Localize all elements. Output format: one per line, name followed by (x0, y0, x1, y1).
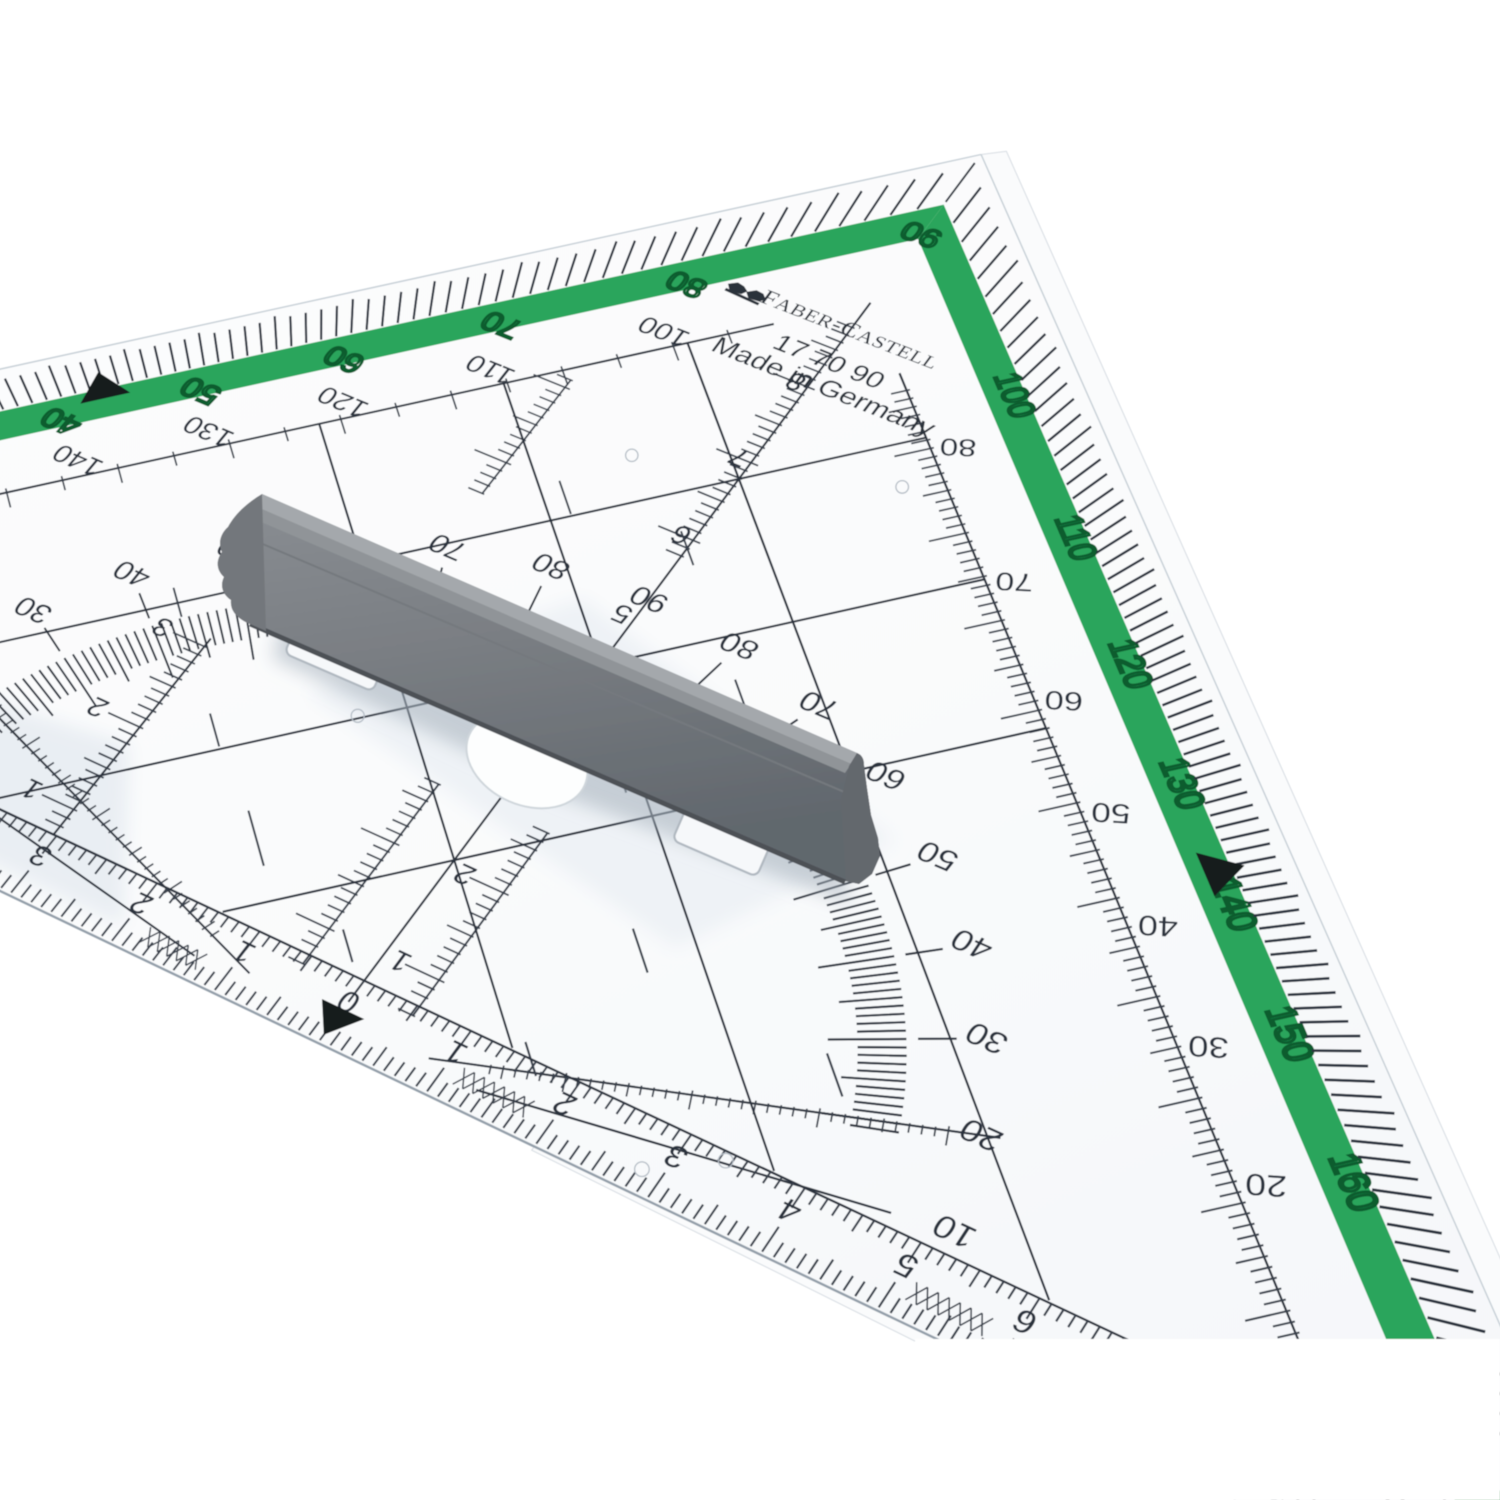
svg-text:20: 20 (1245, 1166, 1287, 1203)
svg-text:70: 70 (995, 566, 1034, 596)
svg-text:80: 80 (939, 432, 978, 460)
svg-text:60: 60 (1044, 685, 1084, 717)
svg-text:40: 40 (1137, 909, 1178, 943)
svg-text:30: 30 (1188, 1029, 1230, 1064)
svg-text:50: 50 (1091, 797, 1131, 830)
